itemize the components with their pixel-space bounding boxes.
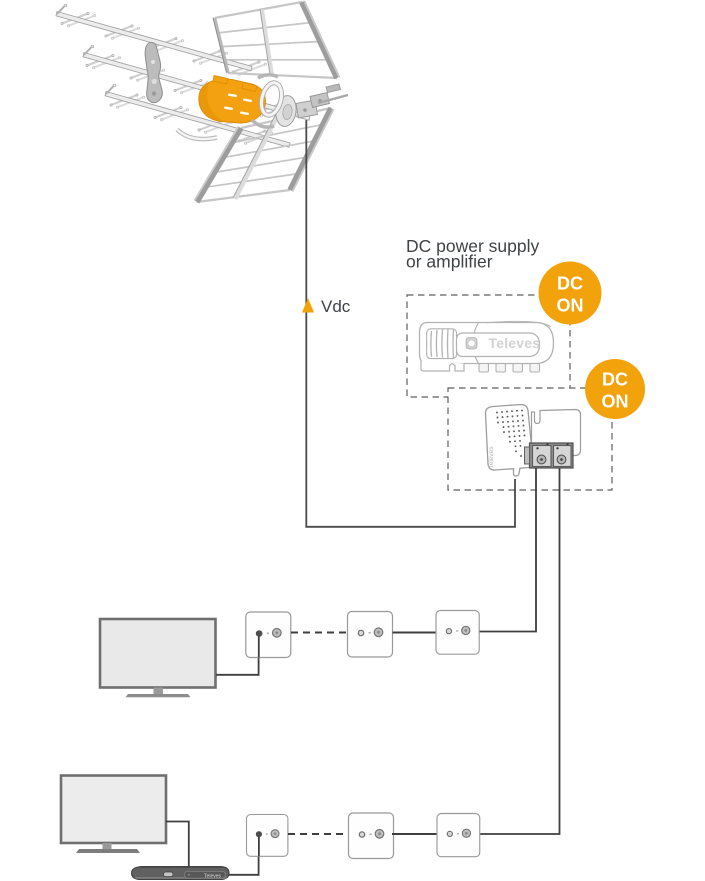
svg-text:DC: DC: [557, 274, 583, 294]
svg-text:or amplifier: or amplifier: [406, 252, 493, 272]
svg-text:Televes: Televes: [488, 446, 495, 469]
svg-text:Televes: Televes: [489, 335, 541, 351]
svg-text:Televes: Televes: [204, 873, 221, 879]
svg-text:ON: ON: [602, 392, 629, 412]
svg-text:Vdc: Vdc: [321, 297, 351, 316]
svg-text:ON: ON: [557, 296, 584, 316]
svg-text:DC: DC: [602, 370, 628, 390]
